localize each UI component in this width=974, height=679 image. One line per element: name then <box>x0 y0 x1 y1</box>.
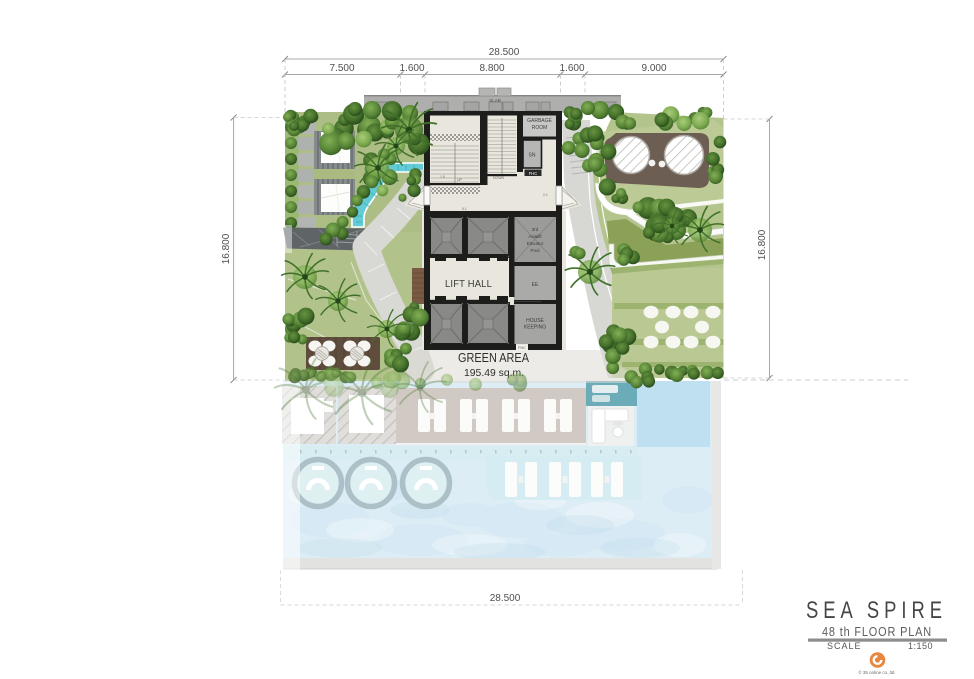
svg-text:SLAB: SLAB <box>489 98 501 103</box>
svg-text:2.1: 2.1 <box>543 193 548 197</box>
svg-text:48 th FLOOR PLAN: 48 th FLOOR PLAN <box>822 624 932 639</box>
svg-text:9.000: 9.000 <box>641 63 666 74</box>
svg-text:5.1: 5.1 <box>462 207 467 211</box>
svg-text:LIFT HALL: LIFT HALL <box>445 279 492 290</box>
svg-text:28.500: 28.500 <box>489 47 520 58</box>
svg-text:8.800: 8.800 <box>479 63 504 74</box>
svg-text:Asialift: Asialift <box>528 234 542 239</box>
svg-text:7.500: 7.500 <box>329 63 354 74</box>
svg-text:Pool: Pool <box>530 248 539 253</box>
svg-text:DOWN: DOWN <box>493 176 505 180</box>
svg-text:Elevator: Elevator <box>527 241 544 246</box>
svg-text:UP: UP <box>457 178 463 182</box>
svg-text:3rd: 3rd <box>532 227 539 232</box>
svg-text:1:150: 1:150 <box>908 641 933 651</box>
svg-text:28.500: 28.500 <box>490 593 521 604</box>
svg-text:EE: EE <box>532 282 539 288</box>
svg-text:© 35 online co.,ltd.: © 35 online co.,ltd. <box>858 669 895 675</box>
svg-text:SCALE: SCALE <box>827 641 862 651</box>
svg-text:FHC: FHC <box>518 346 526 350</box>
svg-text:16.800: 16.800 <box>757 229 768 260</box>
svg-text:1.5: 1.5 <box>440 175 445 179</box>
svg-text:1.600: 1.600 <box>399 63 424 74</box>
svg-text:SEA SPIRE: SEA SPIRE <box>806 597 947 624</box>
svg-text:KEEPING: KEEPING <box>524 325 546 331</box>
svg-text:16.800: 16.800 <box>221 233 232 264</box>
svg-text:GREEN AREA: GREEN AREA <box>458 351 530 365</box>
svg-text:ROOM: ROOM <box>532 125 548 131</box>
svg-text:1.600: 1.600 <box>559 63 584 74</box>
svg-text:GARBAGE: GARBAGE <box>527 118 552 124</box>
svg-text:FHC: FHC <box>529 171 538 176</box>
svg-text:HOUSE: HOUSE <box>526 318 544 324</box>
svg-text:SN: SN <box>529 153 536 159</box>
